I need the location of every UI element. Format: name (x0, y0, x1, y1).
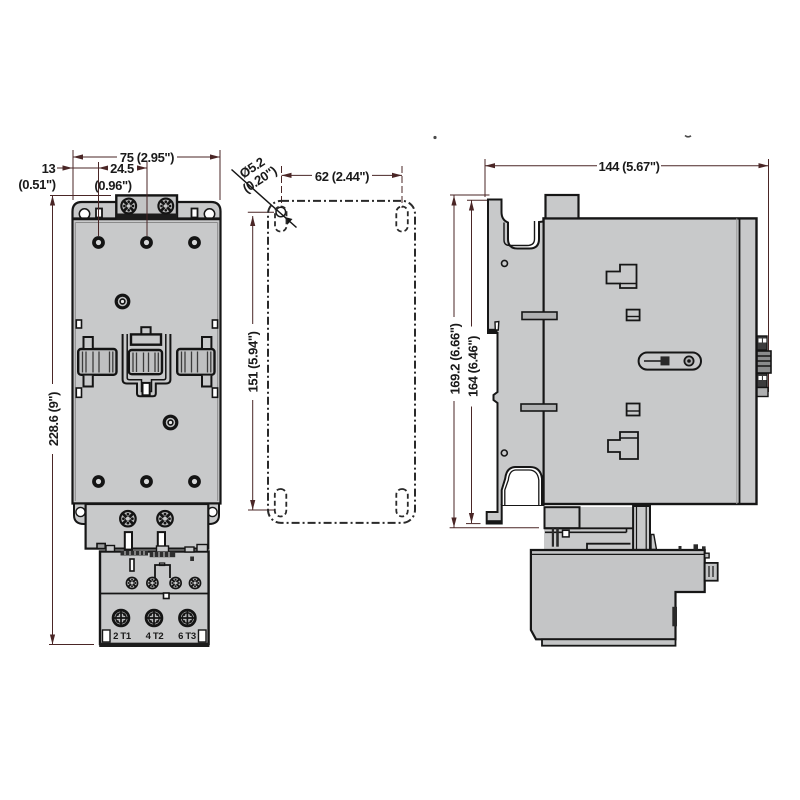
svg-text:6 T3: 6 T3 (178, 631, 196, 642)
svg-text:228.6 (9"): 228.6 (9") (46, 392, 61, 446)
svg-text:62 (2.44"): 62 (2.44") (315, 169, 369, 184)
svg-text:169.2 (6.66"): 169.2 (6.66") (448, 323, 463, 394)
svg-text:4 T2: 4 T2 (146, 631, 164, 642)
svg-text:2 T1: 2 T1 (113, 631, 132, 642)
svg-text:144 (5.67"): 144 (5.67") (598, 159, 659, 174)
svg-text:151 (5.94"): 151 (5.94") (246, 331, 261, 392)
svg-text:24.5: 24.5 (110, 161, 134, 176)
svg-text:164 (6.46"): 164 (6.46") (466, 336, 481, 397)
svg-text:(0.51"): (0.51") (18, 177, 55, 192)
svg-text:(0.96"): (0.96") (94, 178, 131, 193)
svg-text:13: 13 (42, 161, 56, 176)
